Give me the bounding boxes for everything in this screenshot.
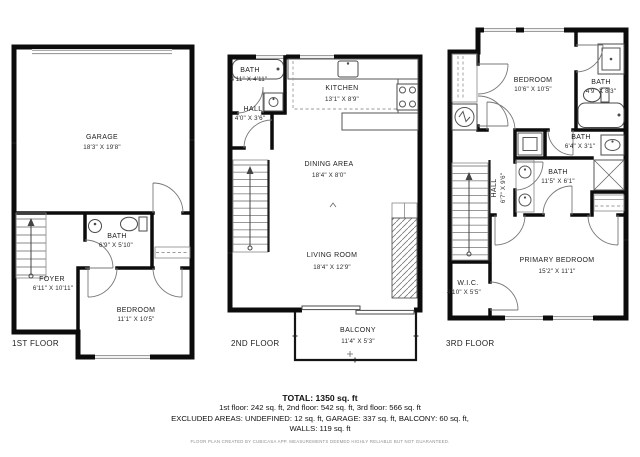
- room-dims-bath-top: 4'9" X 8'3": [586, 88, 616, 95]
- room-dims-bath-mid: 6'4" X 3'1": [565, 143, 595, 150]
- window: [95, 355, 150, 361]
- room-label-wic: W.I.C.: [457, 280, 478, 287]
- room-label-dining: DINING AREA: [305, 161, 354, 168]
- room-label-living: LIVING ROOM: [307, 252, 358, 259]
- room-dims-hall: 6'7" X 9'6": [500, 173, 507, 203]
- room-dims-dining: 18'4" X 8'0": [312, 172, 346, 179]
- washer-icon: [452, 104, 477, 130]
- room-dims-bath: 6'9" X 5'10": [99, 242, 133, 249]
- third-floor-plan: BEDROOM 10'6" X 10'5" BATH 4'9" X 8'3" B…: [446, 28, 629, 349]
- shower-icon: [518, 133, 542, 155]
- exterior-walls: [230, 57, 420, 310]
- sink-icon: [264, 93, 283, 111]
- stair-hatch-block: [392, 203, 417, 298]
- room-dims-wic: 4'10" X 5'5": [447, 289, 481, 296]
- shower-icon: [594, 160, 624, 190]
- kitchen-sink-icon: [338, 61, 358, 77]
- shower-icon: [598, 44, 624, 74]
- floor-label-2nd: 2ND FLOOR: [231, 339, 280, 348]
- total-area: TOTAL: 1350 sq. ft: [0, 393, 640, 403]
- room-dims-hall: 4'0" X 3'6": [235, 115, 265, 122]
- room-dims-bath-main: 11'5" X 6'1": [541, 178, 574, 185]
- closet: [155, 247, 190, 258]
- room-dims-bedroom: 10'6" X 10'5": [514, 86, 552, 93]
- sliding-door: [302, 306, 414, 314]
- floor-plan-page: GARAGE 18'3" X 19'8" BATH 6'9" X 5'10" F…: [0, 0, 640, 457]
- exterior-walls: [14, 47, 192, 357]
- bathtub-icon: [578, 103, 624, 128]
- room-dims-foyer: 6'11" X 10'11": [33, 285, 73, 292]
- room-label-garage: GARAGE: [86, 134, 118, 141]
- marker: [347, 351, 353, 357]
- closet: [452, 54, 477, 102]
- stove-icon: [397, 84, 418, 110]
- floor-areas: 1st floor: 242 sq. ft, 2nd floor: 542 sq…: [0, 403, 640, 414]
- room-label-bedroom: BEDROOM: [117, 307, 156, 314]
- door-arcs: [85, 183, 183, 297]
- room-label-bath-main: BATH: [548, 169, 568, 176]
- marker: [330, 203, 336, 207]
- room-dims-primary: 15'2" X 11'1": [538, 268, 575, 275]
- room-dims-bath: 4'11" X 4'11": [231, 76, 268, 83]
- room-label-bath-top: BATH: [591, 79, 611, 86]
- area-summary: TOTAL: 1350 sq. ft 1st floor: 242 sq. ft…: [0, 393, 640, 444]
- sink-icon: [89, 220, 102, 233]
- floor-label-3rd: 3RD FLOOR: [446, 339, 495, 348]
- room-dims-balcony: 11'4" X 5'3": [341, 338, 374, 345]
- walls-area: WALLS: 119 sq. ft: [0, 424, 640, 435]
- stairs-direction-arrow: [466, 172, 473, 256]
- garage-door: [32, 49, 172, 55]
- room-label-kitchen: KITCHEN: [325, 85, 358, 92]
- room-dims-kitchen: 13'1" X 8'9": [325, 96, 359, 103]
- room-dims-bedroom: 11'1" X 10'5": [117, 316, 154, 323]
- second-floor-plan: BATH 4'11" X 4'11" HALL 4'0" X 3'6" KITC…: [228, 55, 421, 363]
- double-sink-icon: [516, 160, 534, 212]
- interior-walls: [14, 213, 192, 332]
- toilet-icon: [121, 217, 148, 231]
- room-label-balcony: BALCONY: [340, 327, 376, 334]
- window: [484, 28, 564, 34]
- room-label-bath: BATH: [240, 67, 260, 74]
- room-label-bedroom: BEDROOM: [514, 77, 553, 84]
- room-dims-living: 18'4" X 12'9": [313, 264, 351, 271]
- stairs: [16, 213, 46, 278]
- sink-icon: [601, 135, 624, 155]
- excluded-areas: EXCLUDED AREAS: UNDEFINED: 12 sq. ft, GA…: [0, 414, 640, 425]
- floor-plan-drawing: GARAGE 18'3" X 19'8" BATH 6'9" X 5'10" F…: [0, 0, 640, 457]
- stairs: [233, 160, 269, 252]
- room-label-primary: PRIMARY BEDROOM: [519, 257, 594, 264]
- stairs: [452, 160, 490, 262]
- room-label-bath: BATH: [107, 233, 127, 240]
- first-floor-plan: GARAGE 18'3" X 19'8" BATH 6'9" X 5'10" F…: [12, 47, 195, 360]
- closet: [594, 195, 624, 211]
- floor-label-1st: 1ST FLOOR: [12, 339, 59, 348]
- room-label-hall: HALL: [244, 106, 263, 113]
- room-label-bath-mid: BATH: [571, 134, 591, 141]
- room-label-hall: HALL: [491, 179, 498, 198]
- room-label-foyer: FOYER: [39, 276, 65, 283]
- disclaimer: FLOOR PLAN CREATED BY CUBICASA APP. MEAS…: [0, 439, 640, 444]
- room-dims-garage: 18'3" X 19'8": [83, 144, 121, 151]
